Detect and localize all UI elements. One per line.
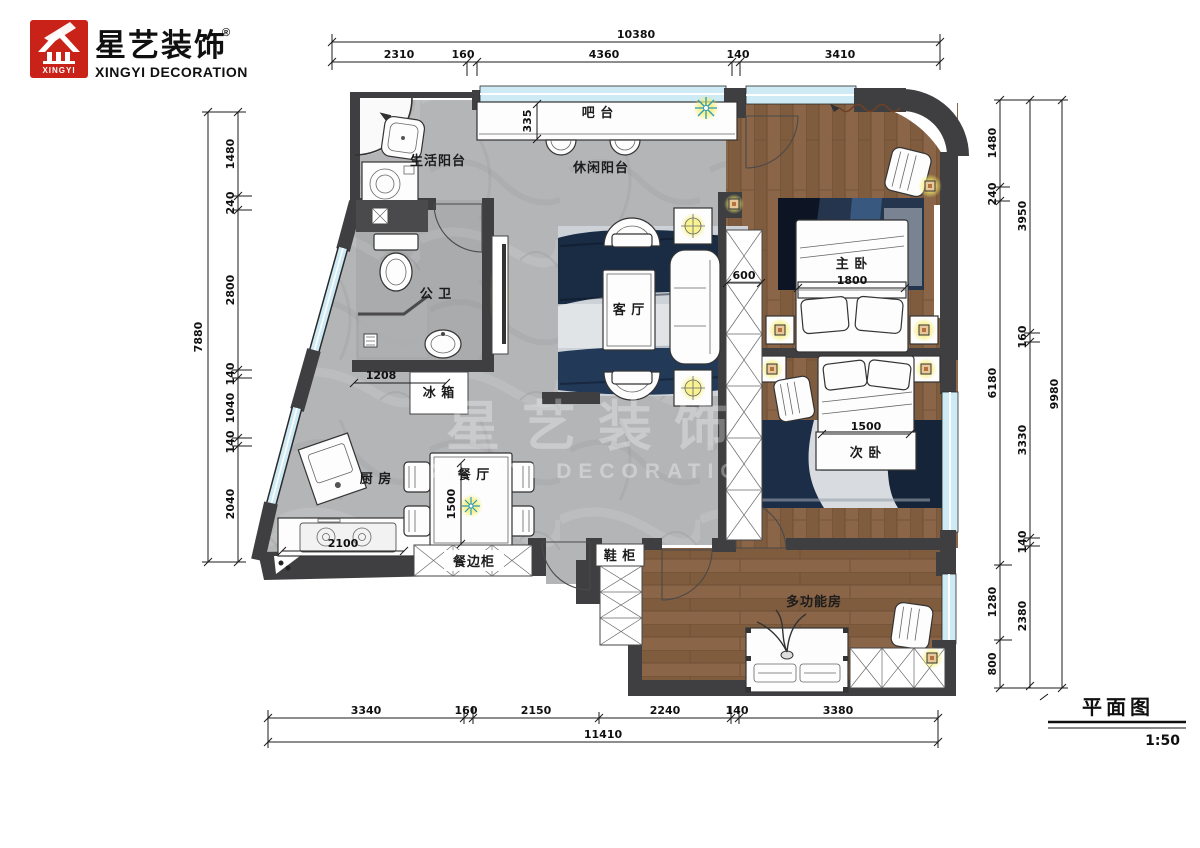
master-right-wall (940, 152, 958, 360)
dim-label: 11410 (584, 728, 623, 741)
dim-label: 140 (224, 430, 237, 453)
room-label-kitchen: 厨 房 (360, 471, 393, 486)
room-label-life-balcony: 生活阳台 (410, 153, 466, 168)
floor-plan-page: 星艺装饰 XINGYI DECORATION 10380 2310 160 43… (0, 0, 1200, 848)
dim-label: 240 (986, 182, 999, 205)
title-block: 平面图 1:50 (1040, 694, 1186, 749)
lamp (768, 318, 792, 342)
multi-room-window (942, 574, 956, 644)
dim-label: 1480 (986, 127, 999, 158)
dim-label: 2040 (224, 488, 237, 519)
dim-label: 600 (733, 269, 756, 282)
multi-chair (890, 602, 934, 651)
dim-label: 140 (1016, 530, 1029, 553)
dim-label: 3410 (825, 48, 856, 61)
dim-bottom: 3340 160 2150 2240 140 3380 11410 (264, 704, 942, 748)
dim-label: 240 (224, 191, 237, 214)
dim-label: 3950 (1016, 200, 1029, 231)
tv-cabinet (490, 236, 510, 354)
dim-label: 2800 (224, 274, 237, 305)
dim-label: 2240 (650, 704, 681, 717)
pillow (801, 296, 850, 334)
dim-label: 2380 (1016, 600, 1029, 631)
room-label-fridge: 冰 箱 (423, 385, 456, 400)
master-top-window (746, 86, 856, 104)
room-label-shoe: 鞋 柜 (604, 548, 637, 563)
tv-icon (502, 244, 506, 344)
dim-label: 1800 (837, 274, 868, 287)
washing-machine (362, 162, 418, 206)
lamp (918, 174, 942, 198)
room-label-living: 客 厅 (613, 302, 646, 317)
bar-flower-decor (693, 95, 719, 121)
dim-label: 7880 (192, 321, 205, 352)
dim-label: 160 (452, 48, 475, 61)
dim-label: 10380 (617, 28, 656, 41)
sofa (670, 250, 720, 364)
lamp (912, 318, 936, 342)
dim-label: 4360 (589, 48, 620, 61)
dim-right: 1480 240 6180 1280 800 3950 160 3330 140… (986, 96, 1068, 692)
room-label-second: 次 卧 (850, 445, 883, 460)
dim-label: 140 (224, 362, 237, 385)
brand-name-cn: 星艺装饰 (95, 28, 227, 63)
registered-mark: ® (222, 27, 230, 39)
dim-label: 140 (726, 704, 749, 717)
pillow (867, 359, 912, 390)
dim-label: 1500 (445, 488, 458, 519)
dining-chair (404, 462, 430, 492)
dim-label: 800 (986, 652, 999, 675)
dim-top: 10380 2310 160 4360 140 3410 (328, 28, 944, 76)
dim-label: 140 (727, 48, 750, 61)
room-label-master: 主 卧 (836, 256, 869, 271)
lamp (724, 194, 744, 214)
room-label-leisure-balcony: 休闲阳台 (572, 160, 629, 175)
desk (746, 628, 848, 692)
pillow (823, 360, 868, 391)
dim-label: 160 (455, 704, 478, 717)
dim-left: 7880 1480 240 2800 140 1040 140 2040 (192, 108, 252, 566)
bar-window (480, 86, 726, 102)
room-label-multi: 多功能房 (786, 594, 842, 609)
second-bedroom-window (942, 392, 958, 532)
dim-label: 1208 (366, 369, 397, 382)
drawing-scale: 1:50 (1145, 733, 1180, 749)
watermark-cn: 星艺装饰 (446, 397, 750, 457)
dim-label: 1280 (986, 586, 999, 617)
bedroom-chair (773, 375, 816, 423)
dim-label: 2100 (328, 537, 359, 550)
dining-chair (404, 506, 430, 536)
dim-label: 1500 (851, 420, 882, 433)
brand-name-en: XINGYI DECORATION (95, 64, 248, 80)
pillow (855, 296, 904, 334)
dim-label: 9980 (1048, 378, 1061, 409)
room-label-bathroom: 公 卫 (420, 286, 453, 301)
logo-text: XINGYI (42, 66, 75, 75)
room-label-bar: 吧 台 (582, 105, 615, 120)
dim-label: 3330 (1016, 424, 1029, 455)
dim-label: 3340 (351, 704, 382, 717)
lamp (761, 358, 783, 380)
lamp (915, 358, 937, 380)
shoe-cabinet-hatch (600, 566, 642, 645)
dim-label: 2310 (384, 48, 415, 61)
lamp (921, 647, 943, 669)
room-label-dining: 餐 厅 (457, 467, 491, 482)
dim-label: 1040 (224, 392, 237, 423)
dim-label: 335 (521, 110, 534, 133)
dim-label: 2150 (521, 704, 552, 717)
room-label-sideboard: 餐边柜 (452, 554, 495, 569)
toilet-tank (374, 234, 418, 250)
dim-label: 6180 (986, 367, 999, 398)
brand-logo: XINGYI 星艺装饰 ® XINGYI DECORATION (30, 20, 248, 80)
dim-label: 160 (1016, 325, 1029, 348)
drawing-title: 平面图 (1082, 696, 1154, 719)
balcony-left-wall (350, 92, 360, 208)
floor-plan-canvas: 星艺装饰 XINGYI DECORATION 10380 2310 160 43… (0, 0, 1200, 848)
dim-label: 1480 (224, 138, 237, 169)
dim-label: 3380 (823, 704, 854, 717)
dining-flower-decor (459, 494, 483, 518)
